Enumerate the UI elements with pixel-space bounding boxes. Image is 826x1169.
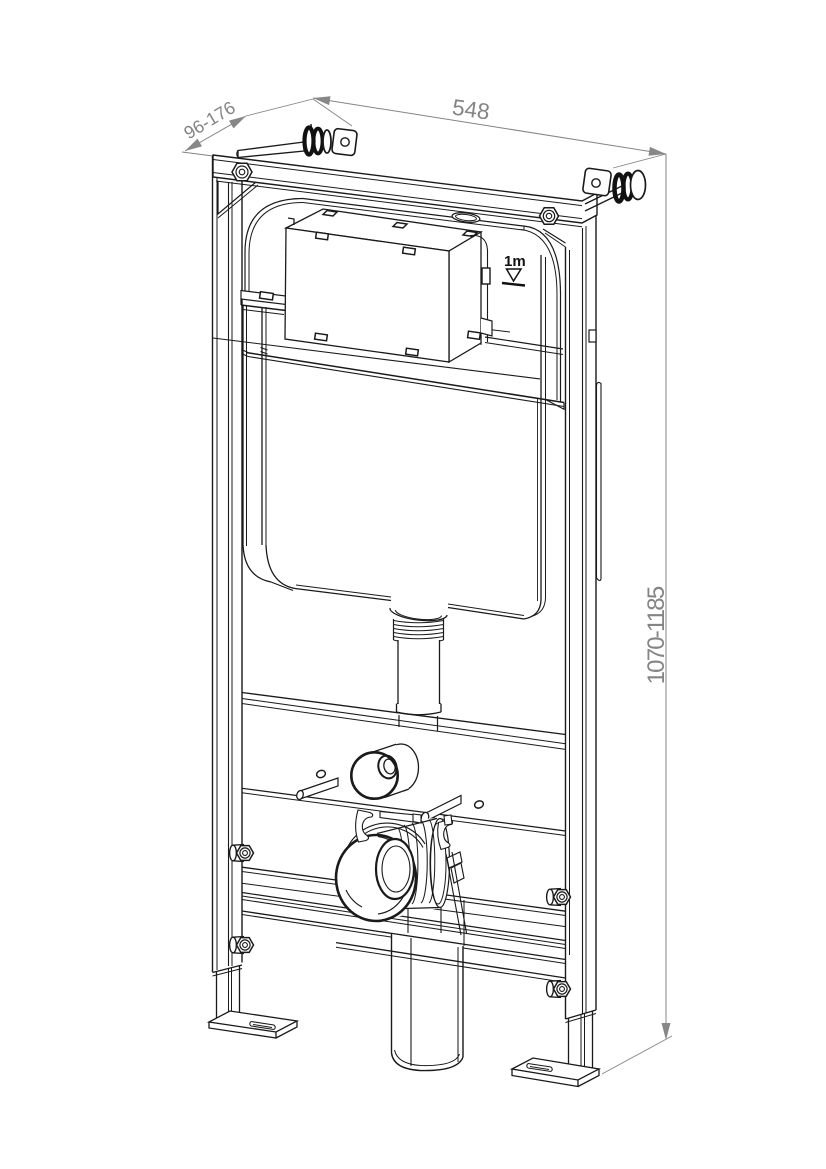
svg-text:1070-1185: 1070-1185 — [643, 586, 670, 684]
svg-text:548: 548 — [451, 95, 492, 125]
svg-text:1m: 1m — [504, 253, 526, 270]
